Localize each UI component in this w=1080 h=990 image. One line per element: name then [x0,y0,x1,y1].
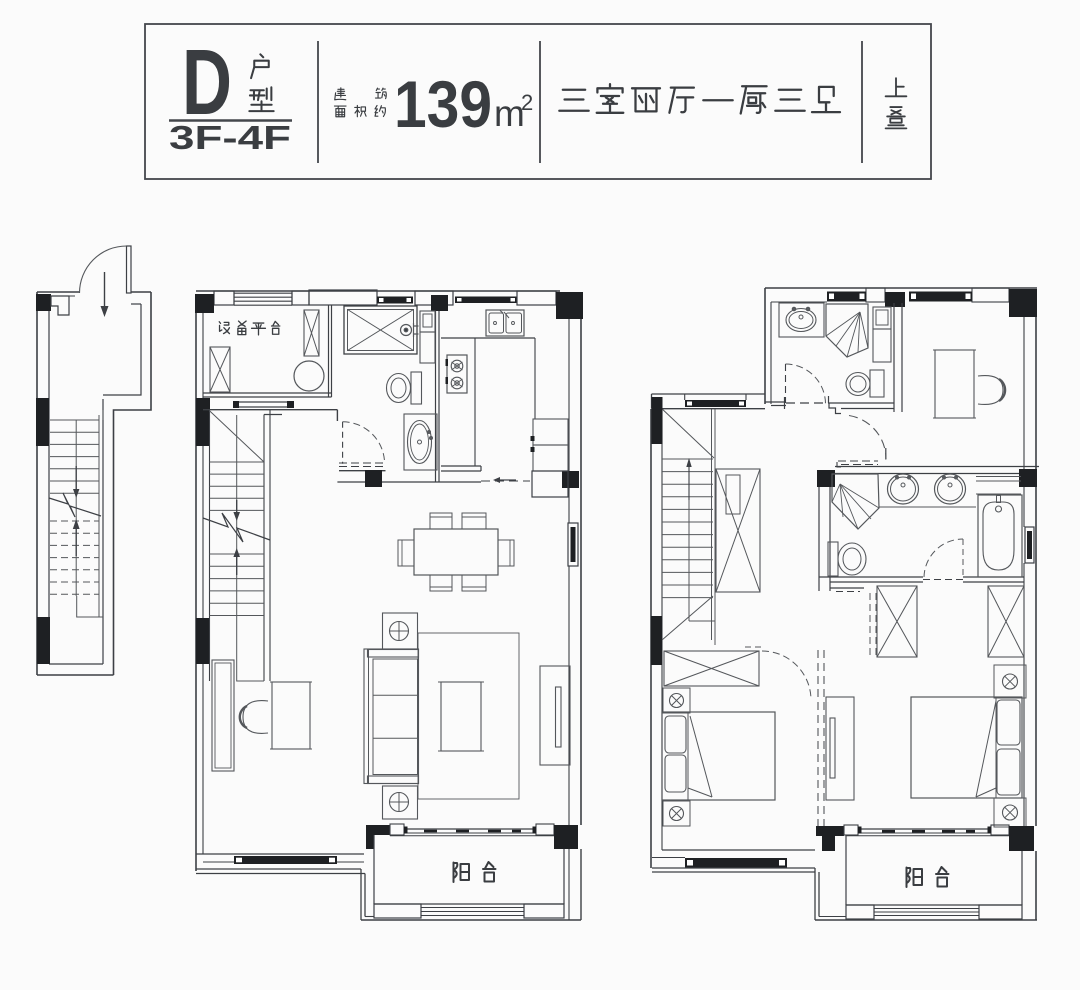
svg-text:2: 2 [521,90,533,115]
svg-text:3F-4F: 3F-4F [169,119,291,156]
svg-text:139: 139 [394,67,492,141]
